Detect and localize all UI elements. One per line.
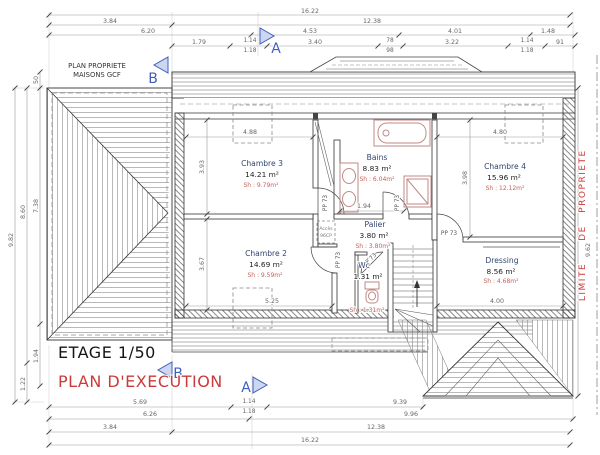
left-wall (175, 113, 184, 318)
plan-title-execution: PLAN D'EXECUTION (58, 372, 223, 391)
room-sh: Sh : 1.31m² (349, 307, 385, 314)
dim-label: 4.88 (243, 129, 257, 136)
room-name-chambre2: Chambre 2 (245, 249, 287, 258)
boundary-word-propriete: PROPRIETE (578, 149, 588, 212)
room-area: 14.21 m² (245, 170, 279, 179)
dim-label: 3.84 (103, 18, 117, 25)
dim-label: 91 (556, 39, 564, 46)
access-hatch-label-2: 96CP (320, 233, 332, 239)
dim-label: 5.69 (133, 399, 147, 406)
door-label: PP 73 (336, 252, 342, 269)
property-plan-note-1: PLAN PROPRIETE (68, 62, 126, 70)
dim-label: 3.67 (199, 257, 206, 271)
dim-label: 1.14 (243, 38, 256, 44)
boundary-word-limite: LIMITE (578, 263, 588, 301)
dim-label: 3.40 (308, 39, 322, 46)
dim-label: 3.84 (103, 424, 117, 431)
dim-label: 1.18 (243, 48, 256, 54)
room-name-wc: Wc (358, 261, 370, 270)
notes: PLAN PROPRIETE MAISONS GCF (68, 62, 126, 79)
property-plan-note-2: MAISONS GCF (73, 71, 121, 79)
dim-label: 9.39 (393, 399, 407, 406)
room-name-chambre4: Chambre 4 (484, 162, 526, 171)
dim-label: 4.80 (493, 129, 507, 136)
section-a-top-label: A (271, 41, 281, 57)
dim-label: 78 (386, 38, 394, 44)
bottom-wall-right (437, 310, 575, 318)
room-sh: Sh : 12.12m² (486, 185, 525, 192)
dim-label: 1.14 (242, 399, 255, 405)
room-sh: Sh : 6.04m² (359, 176, 395, 183)
dim-label: 6.26 (143, 411, 157, 418)
dim-label: 8.60 (20, 205, 27, 219)
dim-label: 12.38 (363, 18, 381, 25)
room-sh: Sh : 4.68m² (483, 278, 519, 285)
dim-label: 1.94 (357, 203, 371, 210)
section-b-top-label: B (148, 71, 158, 87)
dim-label: 9.96 (404, 411, 418, 418)
dim-label: 6.20 (141, 28, 155, 35)
floor-plan-page: Accès 96CP 4.88 4.80 3.93 3.67 3.98 1.94… (0, 0, 600, 455)
access-hatch-label-1: Accès (319, 225, 333, 232)
dim-label: 98 (386, 48, 394, 54)
dim-label: 4.53 (303, 28, 317, 35)
dim-label: 1.18 (520, 48, 533, 54)
room-area: 14.69 m² (249, 260, 283, 269)
room-area: 3.80 m² (360, 231, 389, 240)
dim-label: 4.00 (490, 298, 504, 305)
room-area: 8.83 m² (363, 164, 392, 173)
dim-label: 1.22 (20, 377, 27, 391)
dim-label: 16.22 (301, 437, 319, 444)
room-area: 1.31 m² (354, 272, 383, 281)
room-area: 8.56 m² (487, 267, 516, 276)
dim-label: 1.14 (520, 38, 533, 44)
room-sh: Sh : 3.80m² (355, 243, 391, 250)
floor-plan-canvas: Accès 96CP 4.88 4.80 3.93 3.67 3.98 1.94… (0, 0, 600, 455)
dim-label: 50 (33, 76, 40, 84)
dim-label: 3.93 (199, 160, 206, 174)
dim-label: 4.01 (448, 28, 462, 35)
room-name-dressing: Dressing (485, 256, 518, 265)
dim-label: 9.62 (585, 243, 592, 257)
room-sh: Sh : 9.59m² (247, 272, 283, 279)
dim-label: 1.94 (33, 349, 40, 363)
boundary-word-de: DE (578, 225, 588, 241)
left-roof (47, 88, 172, 340)
right-wall (563, 98, 575, 318)
door-label: PP 73 (323, 195, 329, 212)
dim-label: 3.98 (462, 171, 469, 185)
boundary-labels: PROPRIETE DE LIMITE (578, 149, 588, 301)
dim-label: 9.82 (8, 233, 15, 247)
dim-label: 12.38 (367, 424, 385, 431)
dormer (310, 57, 482, 72)
dim-label: 3.22 (445, 39, 459, 46)
dim-label: 5.25 (265, 298, 279, 305)
dim-label: 16.22 (301, 8, 319, 15)
room-area: 15.96 m² (487, 173, 521, 182)
room-name-chambre3: Chambre 3 (241, 159, 283, 168)
dim-label: 7.38 (33, 199, 40, 213)
section-a-bottom-label: A (241, 380, 251, 396)
building-walls (175, 98, 575, 318)
plan-title-etage: ETAGE 1/50 (58, 343, 156, 362)
room-sh: Sh : 9.79m² (243, 182, 279, 189)
dim-label: 1.48 (541, 28, 555, 35)
door-label: PP 73 (441, 231, 458, 237)
dim-label: 1.18 (242, 409, 255, 415)
room-name-palier: Palier (365, 220, 387, 229)
dim-label: 1.79 (192, 39, 206, 46)
door-label: PP 73 (395, 195, 401, 212)
room-name-bains: Bains (367, 153, 388, 162)
